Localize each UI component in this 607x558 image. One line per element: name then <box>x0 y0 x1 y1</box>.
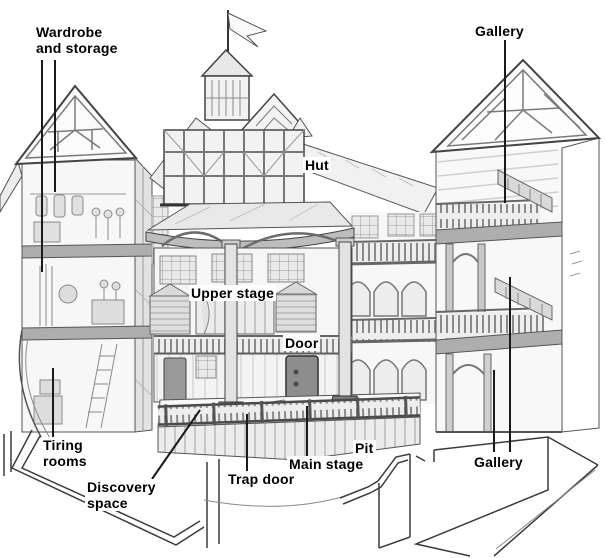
label-pit: Pit <box>353 440 376 456</box>
label-wardrobe-and-storage: Wardrobe and storage <box>34 24 120 56</box>
label-gallery-bottom: Gallery <box>472 454 525 470</box>
label-upper-stage: Upper stage <box>189 285 276 301</box>
left-tiring-building <box>0 86 152 452</box>
label-tiring-rooms: Tiring rooms <box>41 437 89 469</box>
label-trap-door: Trap door <box>226 471 296 487</box>
flag-pennant-icon <box>228 13 266 47</box>
middle-galleries <box>346 212 438 404</box>
hut-structure <box>150 10 312 205</box>
label-main-stage: Main stage <box>287 456 365 472</box>
label-gallery-top: Gallery <box>473 23 526 39</box>
globe-theatre-diagram: Wardrobe and storage Gallery Hut Upper s… <box>0 0 607 558</box>
right-gallery-building <box>432 60 599 432</box>
globe-theatre-illustration <box>0 0 607 558</box>
stage-door <box>286 356 318 402</box>
label-door: Door <box>283 335 320 351</box>
tiring-house-facade <box>150 248 352 402</box>
stage-canopy <box>146 202 354 250</box>
label-discovery-space: Discovery space <box>85 479 158 511</box>
label-hut: Hut <box>303 157 331 173</box>
